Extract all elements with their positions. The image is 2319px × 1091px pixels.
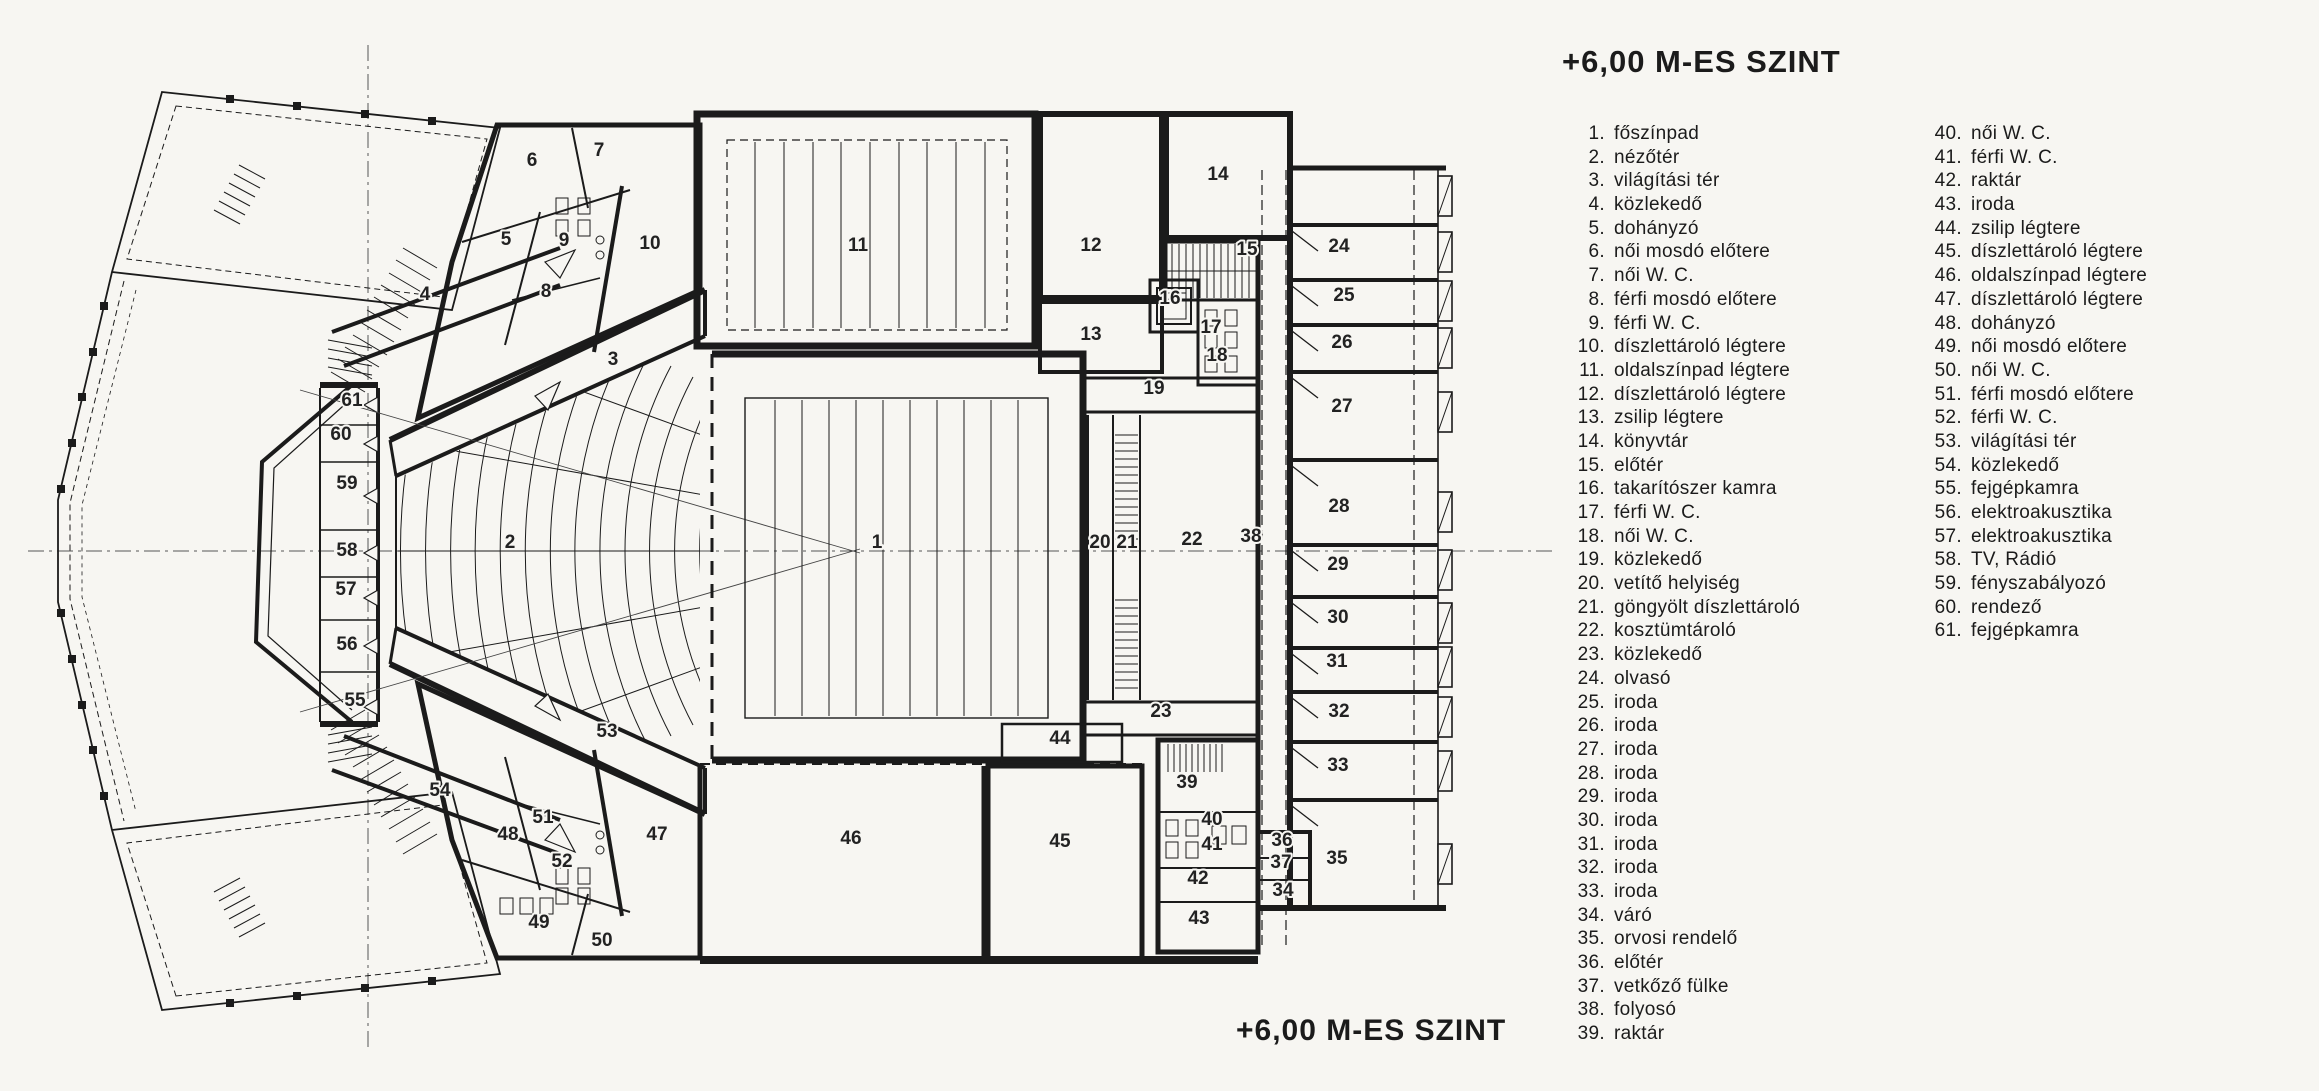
legend-item-label: férfi W. C. — [1614, 313, 1701, 334]
legend-item-number: 16. — [1563, 477, 1605, 501]
legend-item: 44.zsilip légtere — [1920, 217, 2147, 241]
legend-item-label: raktár — [1614, 1023, 1664, 1044]
legend-item-number: 25. — [1563, 691, 1605, 715]
room-number-label: 55 — [344, 690, 366, 711]
legend-item: 48.dohányzó — [1920, 312, 2147, 336]
room-number-label: 42 — [1187, 868, 1208, 889]
room-number-labels: 1234567891011121314151617181920212223242… — [330, 140, 1355, 951]
legend-item-label: nézőtér — [1614, 147, 1679, 168]
legend-item-label: közlekedő — [1971, 455, 2059, 476]
legend-item-label: göngyölt díszlettároló — [1614, 597, 1800, 618]
legend-item-label: fejgépkamra — [1971, 620, 2079, 641]
room-number-label: 37 — [1270, 852, 1291, 873]
floor-plan-drawing: 1234567891011121314151617181920212223242… — [0, 0, 1560, 1091]
legend-item-number: 33. — [1563, 880, 1605, 904]
legend-item: 41.férfi W. C. — [1920, 146, 2147, 170]
room-number-label: 23 — [1150, 701, 1171, 722]
legend-item-number: 46. — [1920, 264, 1962, 288]
legend-item: 26.iroda — [1563, 714, 1800, 738]
legend-item-label: előtér — [1614, 455, 1663, 476]
legend-item: 4.közlekedő — [1563, 193, 1800, 217]
legend-item-number: 48. — [1920, 312, 1962, 336]
legend-item: 10.díszlettároló légtere — [1563, 335, 1800, 359]
legend-item: 18.női W. C. — [1563, 525, 1800, 549]
legend-item-label: kosztümtároló — [1614, 620, 1736, 641]
legend-item: 56.elektroakusztika — [1920, 501, 2147, 525]
legend-item: 34.váró — [1563, 904, 1800, 928]
legend-item: 51.férfi mosdó előtere — [1920, 383, 2147, 407]
auditorium-seating — [395, 260, 737, 842]
legend-item: 35.orvosi rendelő — [1563, 927, 1800, 951]
legend-item-number: 53. — [1920, 430, 1962, 454]
legend-item: 11.oldalszínpad légtere — [1563, 359, 1800, 383]
legend-item: 28.iroda — [1563, 762, 1800, 786]
legend-item-label: vetkőző fülke — [1614, 976, 1729, 997]
side-stage-airspace-top — [697, 114, 1035, 346]
legend-item-label: férfi W. C. — [1971, 407, 2058, 428]
legend-item-label: elektroakusztika — [1971, 502, 2112, 523]
legend-item: 36.előtér — [1563, 951, 1800, 975]
legend-item: 38.folyosó — [1563, 998, 1800, 1022]
legend-item: 50.női W. C. — [1920, 359, 2147, 383]
room-number-label: 52 — [551, 851, 572, 872]
legend-item: 55.fejgépkamra — [1920, 477, 2147, 501]
legend-item-number: 60. — [1920, 596, 1962, 620]
legend-item-label: rendező — [1971, 597, 2042, 618]
room-number-label: 38 — [1240, 526, 1261, 547]
legend-item-number: 12. — [1563, 383, 1605, 407]
legend-item: 9.férfi W. C. — [1563, 312, 1800, 336]
room-number-label: 35 — [1326, 848, 1348, 869]
legend-item-label: iroda — [1971, 194, 2015, 215]
room-number-label: 4 — [420, 284, 431, 305]
legend-item-number: 1. — [1563, 122, 1605, 146]
legend-item: 47.díszlettároló légtere — [1920, 288, 2147, 312]
legend-item-number: 3. — [1563, 169, 1605, 193]
legend-item: 60.rendező — [1920, 596, 2147, 620]
legend-item-label: váró — [1614, 905, 1652, 926]
legend-item: 43.iroda — [1920, 193, 2147, 217]
legend-item: 29.iroda — [1563, 785, 1800, 809]
legend-item-number: 15. — [1563, 454, 1605, 478]
legend-item-number: 11. — [1563, 359, 1605, 383]
legend-item-number: 31. — [1563, 833, 1605, 857]
legend-item: 25.iroda — [1563, 691, 1800, 715]
legend-item: 21.göngyölt díszlettároló — [1563, 596, 1800, 620]
legend-item-label: oldalszínpad légtere — [1971, 265, 2147, 286]
room-number-label: 22 — [1181, 529, 1202, 550]
legend-item-number: 52. — [1920, 406, 1962, 430]
room-number-label: 36 — [1271, 830, 1292, 851]
legend-item-label: iroda — [1614, 786, 1658, 807]
room-number-label: 58 — [336, 540, 357, 561]
floor-plan: 1234567891011121314151617181920212223242… — [0, 0, 1560, 1091]
legend-item: 19.közlekedő — [1563, 548, 1800, 572]
legend-item-number: 14. — [1563, 430, 1605, 454]
legend-item-number: 17. — [1563, 501, 1605, 525]
legend-item-number: 10. — [1563, 335, 1605, 359]
legend-item-label: férfi mosdó előtere — [1971, 384, 2134, 405]
room-number-label: 8 — [541, 281, 552, 302]
room-number-label: 39 — [1176, 772, 1197, 793]
legend-item-label: közlekedő — [1614, 549, 1702, 570]
legend-item-number: 44. — [1920, 217, 1962, 241]
legend-item-label: férfi W. C. — [1971, 147, 2058, 168]
room-number-label: 9 — [559, 230, 570, 251]
legend-item-label: dohányzó — [1614, 218, 1699, 239]
legend-item-number: 39. — [1563, 1022, 1605, 1046]
room-number-label: 50 — [591, 930, 612, 951]
room-number-label: 7 — [594, 140, 605, 161]
legend-item-label: világítási tér — [1614, 170, 1720, 191]
legend-item-label: takarítószer kamra — [1614, 478, 1777, 499]
legend-item-number: 56. — [1920, 501, 1962, 525]
room-number-label: 57 — [335, 579, 356, 600]
legend-item-label: díszlettároló légtere — [1971, 289, 2143, 310]
legend-item: 12.díszlettároló légtere — [1563, 383, 1800, 407]
legend-item-number: 23. — [1563, 643, 1605, 667]
room-number-label: 24 — [1328, 236, 1350, 257]
legend-item-number: 20. — [1563, 572, 1605, 596]
legend-item: 57.elektroakusztika — [1920, 525, 2147, 549]
room-number-label: 60 — [330, 424, 351, 445]
legend-item-label: díszlettároló légtere — [1614, 384, 1786, 405]
legend-item: 6.női mosdó előtere — [1563, 240, 1800, 264]
legend-item: 40.női W. C. — [1920, 122, 2147, 146]
legend-item-number: 9. — [1563, 312, 1605, 336]
stair-hall-and-wcs — [1085, 242, 1258, 412]
room-number-label: 46 — [840, 828, 861, 849]
room-number-label: 14 — [1207, 164, 1229, 185]
legend-item-number: 45. — [1920, 240, 1962, 264]
legend-item-number: 37. — [1563, 975, 1605, 999]
legend-item: 22.kosztümtároló — [1563, 619, 1800, 643]
room-number-label: 48 — [497, 824, 518, 845]
scanned-floor-plan-page: { "title": "+6,00 M-ES SZINT", "caption"… — [0, 0, 2319, 1091]
legend-item: 49.női mosdó előtere — [1920, 335, 2147, 359]
room-number-label: 20 — [1089, 532, 1110, 553]
room-number-label: 33 — [1327, 755, 1348, 776]
legend-item: 7.női W. C. — [1563, 264, 1800, 288]
window-bays — [1438, 176, 1452, 884]
legend-item: 31.iroda — [1563, 833, 1800, 857]
room-number-label: 43 — [1188, 908, 1209, 929]
legend-item-label: fejgépkamra — [1971, 478, 2079, 499]
room-number-label: 25 — [1333, 285, 1355, 306]
legend-item-label: főszínpad — [1614, 123, 1699, 144]
legend-item: 16.takarítószer kamra — [1563, 477, 1800, 501]
legend-item: 15.előtér — [1563, 454, 1800, 478]
legend-item-label: előtér — [1614, 952, 1663, 973]
legend-item-label: világítási tér — [1971, 431, 2077, 452]
legend-item-number: 32. — [1563, 856, 1605, 880]
legend-item: 14.könyvtár — [1563, 430, 1800, 454]
legend-item-number: 21. — [1563, 596, 1605, 620]
room-number-label: 3 — [608, 349, 619, 370]
room-number-label: 26 — [1331, 332, 1352, 353]
legend-item-label: olvasó — [1614, 668, 1671, 689]
stage-right-rooms — [1085, 240, 1258, 832]
room-number-label: 61 — [341, 390, 363, 411]
room-number-label: 16 — [1159, 288, 1180, 309]
room-number-label: 47 — [646, 824, 667, 845]
legend-item-label: folyosó — [1614, 999, 1676, 1020]
legend-item: 37.vetkőző fülke — [1563, 975, 1800, 999]
room-number-label: 41 — [1201, 834, 1223, 855]
legend-item: 17.férfi W. C. — [1563, 501, 1800, 525]
legend-title: +6,00 M-ES SZINT — [1562, 44, 1841, 80]
room-number-label: 49 — [528, 912, 549, 933]
legend-item-label: iroda — [1614, 834, 1658, 855]
room-number-label: 56 — [336, 634, 357, 655]
legend-item-number: 26. — [1563, 714, 1605, 738]
legend: +6,00 M-ES SZINT 1.főszínpad2.nézőtér3.v… — [1540, 0, 2319, 1091]
legend-item-label: iroda — [1614, 763, 1658, 784]
room-number-label: 53 — [596, 721, 617, 742]
room-number-label: 34 — [1272, 880, 1294, 901]
legend-item: 61.fejgépkamra — [1920, 619, 2147, 643]
legend-item: 42.raktár — [1920, 169, 2147, 193]
legend-item-number: 30. — [1563, 809, 1605, 833]
legend-item-label: orvosi rendelő — [1614, 928, 1738, 949]
room-number-label: 5 — [501, 229, 512, 250]
legend-item-number: 18. — [1563, 525, 1605, 549]
room-number-label: 44 — [1049, 728, 1071, 749]
legend-item-number: 34. — [1563, 904, 1605, 928]
legend-item-number: 35. — [1563, 927, 1605, 951]
room-number-label: 21 — [1116, 532, 1138, 553]
main-stage — [712, 354, 1083, 760]
legend-item: 45.díszlettároló légtere — [1920, 240, 2147, 264]
legend-item-label: könyvtár — [1614, 431, 1688, 452]
legend-item: 32.iroda — [1563, 856, 1800, 880]
legend-item: 23.közlekedő — [1563, 643, 1800, 667]
legend-item-number: 50. — [1920, 359, 1962, 383]
legend-item-number: 4. — [1563, 193, 1605, 217]
legend-item: 58.TV, Rádió — [1920, 548, 2147, 572]
legend-item: 52.férfi W. C. — [1920, 406, 2147, 430]
room-number-label: 18 — [1206, 345, 1227, 366]
legend-item-number: 57. — [1920, 525, 1962, 549]
legend-item-label: női W. C. — [1614, 526, 1694, 547]
legend-item-label: díszlettároló légtere — [1971, 241, 2143, 262]
legend-item: 30.iroda — [1563, 809, 1800, 833]
legend-item-number: 28. — [1563, 762, 1605, 786]
room-number-label: 10 — [639, 233, 660, 254]
legend-item-label: férfi W. C. — [1614, 502, 1701, 523]
room-number-label: 15 — [1236, 239, 1258, 260]
room-number-label: 59 — [336, 473, 357, 494]
room-number-label: 31 — [1326, 651, 1348, 672]
legend-item-number: 41. — [1920, 146, 1962, 170]
legend-item-number: 51. — [1920, 383, 1962, 407]
room-number-label: 45 — [1049, 831, 1071, 852]
legend-item-label: zsilip légtere — [1971, 218, 2081, 239]
legend-item-number: 27. — [1563, 738, 1605, 762]
room-number-label: 27 — [1331, 396, 1352, 417]
room-number-label: 13 — [1080, 324, 1101, 345]
legend-item-label: közlekedő — [1614, 194, 1702, 215]
legend-item: 20.vetítő helyiség — [1563, 572, 1800, 596]
legend-item-number: 19. — [1563, 548, 1605, 572]
room-number-label: 1 — [872, 532, 883, 553]
legend-column-2: 40.női W. C.41.férfi W. C.42.raktár43.ir… — [1920, 122, 2147, 643]
legend-item-number: 8. — [1563, 288, 1605, 312]
legend-item-label: iroda — [1614, 715, 1658, 736]
legend-item-label: TV, Rádió — [1971, 549, 2056, 570]
legend-item-number: 36. — [1563, 951, 1605, 975]
legend-item-number: 54. — [1920, 454, 1962, 478]
legend-item-number: 38. — [1563, 998, 1605, 1022]
room-number-label: 28 — [1328, 496, 1349, 517]
legend-item-label: iroda — [1614, 857, 1658, 878]
legend-item-label: elektroakusztika — [1971, 526, 2112, 547]
room-number-label: 11 — [848, 235, 869, 256]
legend-item-number: 61. — [1920, 619, 1962, 643]
room-number-label: 32 — [1328, 701, 1349, 722]
legend-item: 46.oldalszínpad légtere — [1920, 264, 2147, 288]
legend-item-number: 40. — [1920, 122, 1962, 146]
legend-item-label: oldalszínpad légtere — [1614, 360, 1790, 381]
legend-item-label: férfi mosdó előtere — [1614, 289, 1777, 310]
legend-item-number: 43. — [1920, 193, 1962, 217]
legend-item-label: női mosdó előtere — [1971, 336, 2127, 357]
room-number-label: 29 — [1327, 554, 1348, 575]
legend-item-label: női W. C. — [1614, 265, 1694, 286]
legend-item-label: iroda — [1614, 739, 1658, 760]
room-number-label: 54 — [429, 780, 451, 801]
legend-item-number: 59. — [1920, 572, 1962, 596]
legend-item: 59.fényszabályozó — [1920, 572, 2147, 596]
room-number-label: 2 — [505, 532, 516, 553]
legend-item-label: zsilip légtere — [1614, 407, 1724, 428]
legend-item: 53.világítási tér — [1920, 430, 2147, 454]
legend-item-label: díszlettároló légtere — [1614, 336, 1786, 357]
legend-item-number: 7. — [1563, 264, 1605, 288]
legend-item: 2.nézőtér — [1563, 146, 1800, 170]
legend-item-label: iroda — [1614, 881, 1658, 902]
legend-item-number: 55. — [1920, 477, 1962, 501]
legend-item: 1.főszínpad — [1563, 122, 1800, 146]
room-number-label: 6 — [527, 150, 538, 171]
legend-item: 27.iroda — [1563, 738, 1800, 762]
legend-item: 13.zsilip légtere — [1563, 406, 1800, 430]
legend-item-label: fényszabályozó — [1971, 573, 2106, 594]
legend-item: 8.férfi mosdó előtere — [1563, 288, 1800, 312]
legend-item-number: 58. — [1920, 548, 1962, 572]
legend-item-number: 47. — [1920, 288, 1962, 312]
room-number-label: 12 — [1080, 235, 1101, 256]
legend-item-label: női W. C. — [1971, 360, 2051, 381]
legend-item-number: 5. — [1563, 217, 1605, 241]
room-number-label: 19 — [1143, 378, 1164, 399]
legend-item-label: női mosdó előtere — [1614, 241, 1770, 262]
legend-item-number: 22. — [1563, 619, 1605, 643]
room-number-label: 51 — [532, 807, 554, 828]
room-number-label: 30 — [1327, 607, 1348, 628]
legend-item-number: 24. — [1563, 667, 1605, 691]
legend-item: 39.raktár — [1563, 1022, 1800, 1046]
legend-item-number: 49. — [1920, 335, 1962, 359]
legend-item-number: 13. — [1563, 406, 1605, 430]
legend-item-label: vetítő helyiség — [1614, 573, 1740, 594]
legend-item-number: 29. — [1563, 785, 1605, 809]
legend-item: 54.közlekedő — [1920, 454, 2147, 478]
legend-column-1: 1.főszínpad2.nézőtér3.világítási tér4.kö… — [1563, 122, 1800, 1046]
legend-item-number: 2. — [1563, 146, 1605, 170]
legend-item: 24.olvasó — [1563, 667, 1800, 691]
legend-item: 5.dohányzó — [1563, 217, 1800, 241]
legend-item-label: közlekedő — [1614, 644, 1702, 665]
legend-item-label: dohányzó — [1971, 313, 2056, 334]
legend-item: 3.világítási tér — [1563, 169, 1800, 193]
plan-caption: +6,00 M-ES SZINT — [1236, 1014, 1506, 1048]
legend-item-label: raktár — [1971, 170, 2021, 191]
legend-item-number: 42. — [1920, 169, 1962, 193]
room-number-label: 40 — [1201, 809, 1222, 830]
legend-item-label: iroda — [1614, 692, 1658, 713]
legend-item-label: női W. C. — [1971, 123, 2051, 144]
legend-item-label: iroda — [1614, 810, 1658, 831]
legend-item-number: 6. — [1563, 240, 1605, 264]
room-number-label: 17 — [1200, 317, 1221, 338]
legend-item: 33.iroda — [1563, 880, 1800, 904]
